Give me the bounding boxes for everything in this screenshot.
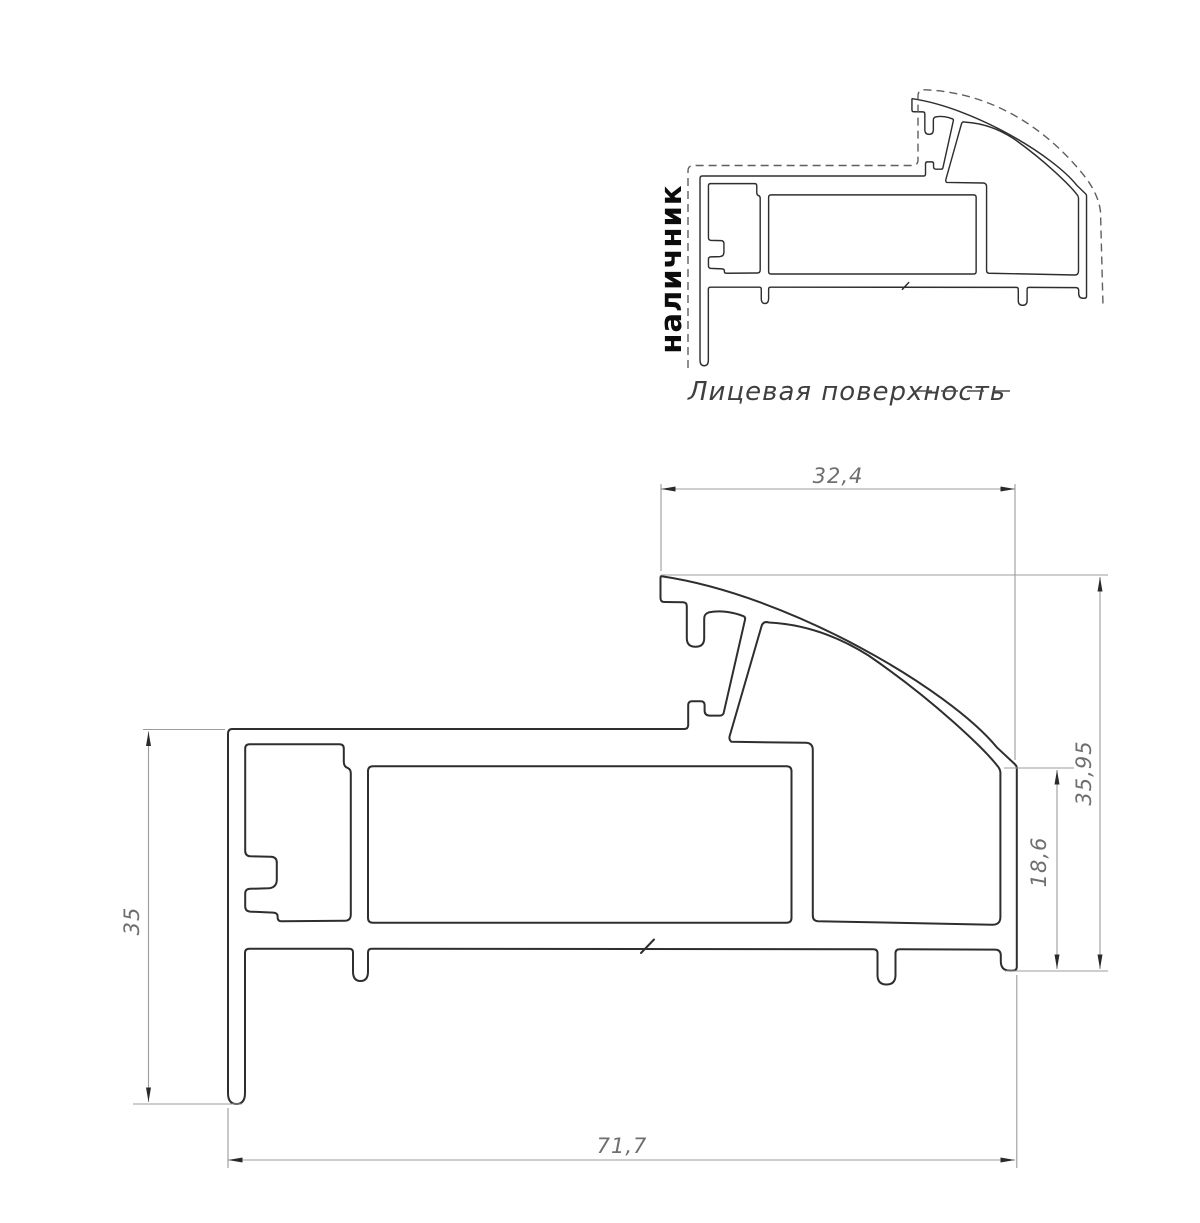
dimension-bottom-width: 71,7 [228, 1134, 1015, 1160]
dimension-top-width-value: 32,4 [813, 464, 864, 488]
mini-profile-cross-section [700, 99, 1087, 366]
dimension-top-width: 32,4 [661, 464, 1015, 489]
dimension-right-inner-height-value: 18,6 [1027, 837, 1051, 888]
main-profile-cross-section [228, 576, 1017, 1104]
face-surface-label: Лицевая поверхность [687, 377, 1006, 407]
casing-label: наличник [654, 184, 688, 353]
dimension-bottom-width-value: 71,7 [597, 1134, 648, 1158]
profile-technical-drawing: наличник Лицевая поверхность 32,4 35,95 [0, 0, 1200, 1223]
face-surface-dashed-outline [688, 90, 1103, 368]
dimension-right-outer-height-value: 35,95 [1072, 740, 1096, 805]
dimension-left-height-value: 35 [120, 907, 144, 936]
drawing-canvas: наличник Лицевая поверхность 32,4 35,95 [0, 0, 1200, 1223]
dimension-right-inner-height: 18,6 [1027, 770, 1057, 969]
dimension-left-height: 35 [120, 732, 149, 1103]
dimension-right-outer-height: 35,95 [1072, 577, 1100, 969]
extension-lines [133, 484, 1108, 1168]
